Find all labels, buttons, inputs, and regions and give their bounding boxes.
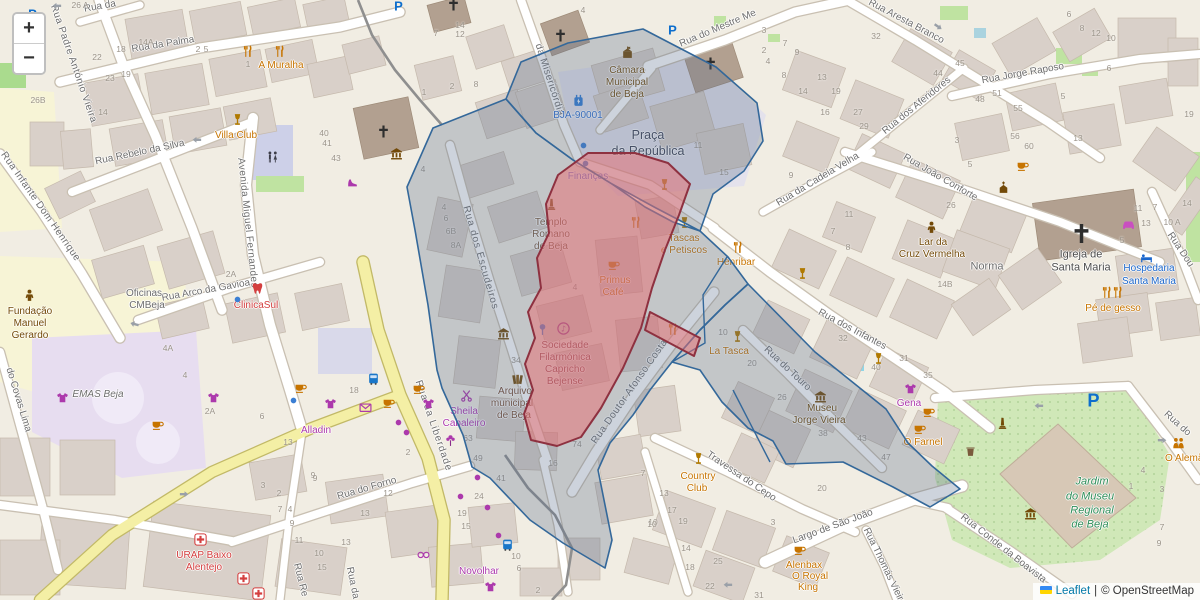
dotb-icon <box>287 394 300 407</box>
house-number: 13 <box>360 509 369 518</box>
map-label: Igreja de <box>1060 250 1103 261</box>
house-number: 18 <box>349 386 358 395</box>
map-label: Santa Maria <box>1122 277 1176 287</box>
house-number: 10 <box>511 552 520 561</box>
map-label: A Muralha <box>258 61 303 71</box>
house-number: 2A <box>226 270 236 279</box>
house-number: 4A <box>163 344 173 353</box>
bar-icon <box>796 267 809 280</box>
bus-icon <box>367 372 380 385</box>
house-number: 31 <box>754 591 763 600</box>
house-number: 2 <box>536 586 541 595</box>
clothes-icon <box>904 382 917 395</box>
map-label: de Beja <box>1071 520 1108 531</box>
house-number: 9 <box>290 519 295 528</box>
map-label: Rua Rebelo da Silva <box>94 139 185 168</box>
clothes-icon <box>56 391 69 404</box>
cup-icon <box>793 543 806 556</box>
house-number: 25 <box>713 557 722 566</box>
map-label: Gerardo <box>12 331 49 341</box>
house-number: 19 <box>678 517 687 526</box>
dotp-icon <box>492 529 505 542</box>
clothes-icon <box>422 397 435 410</box>
cup-icon <box>151 418 164 431</box>
map-label: Alentejo <box>186 563 222 573</box>
clothes-icon <box>484 580 497 593</box>
house-number: 32 <box>838 334 847 343</box>
cup-icon <box>382 396 395 409</box>
map-label: Rua do Mestre Me <box>678 8 758 49</box>
house-number: 23 <box>105 74 114 83</box>
cross-icon <box>554 29 567 42</box>
house-number: 5 <box>968 160 973 169</box>
museum-icon <box>390 147 403 160</box>
medical-icon <box>252 587 265 600</box>
house-number: 3 <box>1160 485 1165 494</box>
arrow-icon <box>179 489 192 502</box>
map-label: Alenbax <box>786 561 822 571</box>
map-label: Villa Club <box>215 131 257 141</box>
person-icon <box>23 289 36 302</box>
house-number: 43 <box>331 154 340 163</box>
parking-icon: P <box>1084 390 1102 408</box>
house-number: 8 <box>782 71 787 80</box>
map-label: EMAS Beja <box>72 390 123 400</box>
house-number: 40 <box>319 129 328 138</box>
svg-text:P: P <box>1087 390 1099 408</box>
house-number: 2 <box>762 46 767 55</box>
house-number: 2 <box>277 489 282 498</box>
map-label: Gena <box>897 399 921 409</box>
map-label: URAP Baixo <box>176 551 231 561</box>
house-number: 51 <box>992 89 1001 98</box>
house-number: 8 <box>474 80 479 89</box>
map-label: Alladin <box>301 426 331 436</box>
ukraine-flag-icon <box>1040 586 1052 594</box>
house-number: 9 <box>313 474 318 483</box>
house-number: 1 <box>246 60 251 69</box>
bar-icon <box>231 113 244 126</box>
house-number: 3 <box>261 481 266 490</box>
map-label: O Alemão <box>1165 454 1200 464</box>
house-number: 7 <box>1160 523 1165 532</box>
house-number: 14 <box>98 108 107 117</box>
house-number: 11 <box>295 536 304 545</box>
map-label: Cruz Vermelha <box>899 250 965 260</box>
bar-icon <box>692 452 705 465</box>
house-number: 13 <box>817 73 826 82</box>
house-number: 19 <box>457 509 466 518</box>
house-number: 44 <box>933 69 942 78</box>
map-label: Rua Re <box>291 562 309 597</box>
map-label: CMBeja <box>129 301 165 311</box>
house-number: 11 <box>1134 204 1143 213</box>
house-number: 2 <box>406 448 411 457</box>
cup-icon <box>1016 159 1029 172</box>
map-label: Rua dos Infantes <box>816 308 887 352</box>
house-number: 14 <box>1182 199 1191 208</box>
museum-icon <box>1024 507 1037 520</box>
arrow-icon <box>1031 398 1044 411</box>
house-number: 3 <box>771 518 776 527</box>
cross-icon <box>377 125 390 138</box>
house-number: 2 <box>450 82 455 91</box>
house-number: 15 <box>461 522 470 531</box>
cross-icon <box>1071 223 1092 244</box>
house-number: 16 <box>820 108 829 117</box>
map-label: Rua Conde da Boavista <box>958 513 1047 586</box>
map-label: Regional <box>1070 506 1113 517</box>
map-label: Avenida Miguel Fernandes <box>235 157 259 288</box>
map-label: Fundação <box>8 307 52 317</box>
map-label: do Museu <box>1066 492 1114 503</box>
house-number: 10 <box>314 549 323 558</box>
house-number: 12 <box>1091 29 1100 38</box>
map-label: O Royal <box>792 572 828 582</box>
cup-icon <box>922 405 935 418</box>
house-number: 56 <box>1010 132 1019 141</box>
map-label: Club <box>687 484 708 494</box>
house-number: 29 <box>859 122 868 131</box>
map-label: Jardim <box>1075 477 1108 488</box>
house-number: 9 <box>789 171 794 180</box>
arrow-icon <box>1157 435 1170 448</box>
medical-icon <box>194 533 207 546</box>
parking-icon: P <box>392 0 405 12</box>
arrow-icon <box>125 314 141 330</box>
svg-text:P: P <box>394 0 403 12</box>
leaflet-map[interactable]: Rua daRua da PalmaRua Padre António Viei… <box>0 0 1200 600</box>
house-number: 32 <box>871 32 880 41</box>
dotp-icon <box>400 426 413 439</box>
house-number: 7 <box>434 29 439 38</box>
fork-icon <box>273 45 286 58</box>
fork-icon <box>1111 286 1124 299</box>
dotb-icon <box>231 293 244 306</box>
map-label: Lar da <box>919 238 947 248</box>
house-number: 14 <box>681 544 690 553</box>
house-number: 3 <box>955 136 960 145</box>
person-icon <box>925 221 938 234</box>
house-number: 22 <box>92 53 101 62</box>
map-label: Rua da <box>344 566 360 600</box>
house-number: 41 <box>322 139 331 148</box>
map-label: Rua dos Aferidores <box>881 75 953 136</box>
map-label: Novolhar <box>459 567 499 577</box>
arrow-icon <box>189 132 202 145</box>
house-number: 14 <box>798 87 807 96</box>
house-number: 4 <box>288 505 293 514</box>
zoom-out-button[interactable]: − <box>14 44 44 73</box>
house-number: 35 <box>923 371 932 380</box>
map-label: Pé de gesso <box>1085 304 1141 314</box>
house-number: 10 A <box>1163 218 1180 227</box>
house-number: 7 <box>831 227 836 236</box>
house-number: 9 <box>1157 539 1162 548</box>
toilets-icon <box>266 151 279 164</box>
map-label: Rua Thomás Vieira <box>861 527 907 600</box>
dotp-icon <box>454 490 467 503</box>
arrow-icon <box>720 577 733 590</box>
house-number: 12 <box>383 489 392 498</box>
house-number: 26B <box>30 96 45 105</box>
shoe-icon <box>346 176 359 189</box>
bar-icon <box>872 352 885 365</box>
house-number: 7 <box>783 39 788 48</box>
house-number: 18 <box>116 45 125 54</box>
house-number: 7 <box>1153 203 1158 212</box>
map-label: Rua da Cadeia Velha <box>775 151 861 208</box>
house-number: 5 <box>204 45 209 54</box>
house-number: 12 <box>455 30 464 39</box>
house-number: 10 <box>1106 34 1115 43</box>
map-label: Manuel <box>14 319 47 329</box>
cup-icon <box>913 422 926 435</box>
house-number: 6 <box>517 564 522 573</box>
bed-icon <box>1140 251 1153 264</box>
mail-icon <box>359 401 372 414</box>
house-number: 18 <box>685 563 694 572</box>
map-label: Oficinas <box>126 289 162 299</box>
house-number: 6 <box>1067 10 1072 19</box>
house-number: 55 <box>1013 104 1022 113</box>
arrow-icon <box>49 0 62 11</box>
house-number: 9 <box>795 48 800 57</box>
map-label: Norma <box>970 262 1003 273</box>
house-number: 14B <box>937 280 952 289</box>
house-number: 19 <box>121 70 130 79</box>
house-number: 8 <box>1080 24 1085 33</box>
leaflet-link[interactable]: Leaflet <box>1056 585 1091 597</box>
map-label: Rua Padre António Vieira <box>48 4 98 125</box>
house-number: 60 <box>1024 142 1033 151</box>
house-number: 24 <box>474 492 483 501</box>
house-number: 2 <box>196 45 201 54</box>
house-number: 1 <box>422 88 427 97</box>
worship-icon <box>997 181 1010 194</box>
clothes-icon <box>207 391 220 404</box>
house-number: 5 <box>1061 92 1066 101</box>
map-label: Largo de São João <box>792 508 875 546</box>
attribution-separator: | <box>1094 585 1097 597</box>
house-number: 4 <box>581 6 586 15</box>
openstreetmap-link[interactable]: © OpenStreetMap <box>1101 585 1194 597</box>
house-number: 17 <box>667 506 676 515</box>
car-icon <box>1122 218 1135 231</box>
house-number: 14A <box>138 38 153 47</box>
house-number: 31 <box>899 354 908 363</box>
house-number: 4 <box>1141 466 1146 475</box>
cup-icon <box>412 382 425 395</box>
map-label: King <box>798 583 818 593</box>
glasses-icon <box>417 548 430 561</box>
parking-icon: P <box>666 23 679 36</box>
cup-icon <box>294 381 307 394</box>
svg-text:P: P <box>668 23 677 36</box>
house-number: 1 <box>1129 482 1134 491</box>
house-number: 13 <box>283 438 292 447</box>
house-number: 7 <box>278 505 283 514</box>
house-number: 19 <box>1184 110 1193 119</box>
basket-icon <box>964 444 977 457</box>
zoom-control: + − <box>12 12 46 75</box>
fork-icon <box>731 241 744 254</box>
house-number: 13 <box>1141 219 1150 228</box>
tooth-icon <box>251 282 264 295</box>
house-number: 6 <box>260 412 265 421</box>
house-number: 10 <box>647 520 656 529</box>
house-number: 13 <box>659 489 668 498</box>
house-number: 11 <box>845 210 854 219</box>
house-number: 2A <box>205 407 215 416</box>
map-label: Santa Maria <box>1051 263 1110 274</box>
map-label: Rua Jorge Raposo <box>981 62 1065 86</box>
house-number: 4 <box>183 371 188 380</box>
clothes-icon <box>324 397 337 410</box>
dotp-icon <box>481 501 494 514</box>
house-number: 26 <box>946 201 955 210</box>
house-number: 48 <box>975 95 984 104</box>
monument-icon <box>996 417 1009 430</box>
house-number: 19 <box>831 87 840 96</box>
house-number: 15 <box>317 563 326 572</box>
house-number: 13 <box>341 538 350 547</box>
attribution-bar: Leaflet|© OpenStreetMap <box>1033 583 1200 600</box>
people-icon <box>1172 437 1185 450</box>
map-label: Hospedaria <box>1123 264 1174 274</box>
house-number: 27 <box>853 108 862 117</box>
house-number: 3 <box>762 26 767 35</box>
house-number: 5 <box>1120 236 1125 245</box>
zoom-in-button[interactable]: + <box>14 14 44 44</box>
house-number: 8 <box>846 243 851 252</box>
house-number: 13 <box>1073 134 1082 143</box>
fork-icon <box>241 45 254 58</box>
map-label: Rua Infante Dom Henrique <box>0 150 82 263</box>
medical-icon <box>237 572 250 585</box>
house-number: 6 <box>1107 64 1112 73</box>
house-number: 22 <box>705 582 714 591</box>
flower-icon <box>444 434 457 447</box>
map-label: do Covas Lima <box>3 367 32 434</box>
house-number: 45 <box>955 59 964 68</box>
house-number: 7 <box>641 469 646 478</box>
house-number: 20 <box>817 484 826 493</box>
cross-icon <box>447 0 460 11</box>
map-label: Country <box>680 472 715 482</box>
house-number: 26 A <box>71 1 88 10</box>
house-number: 4 <box>766 57 771 66</box>
